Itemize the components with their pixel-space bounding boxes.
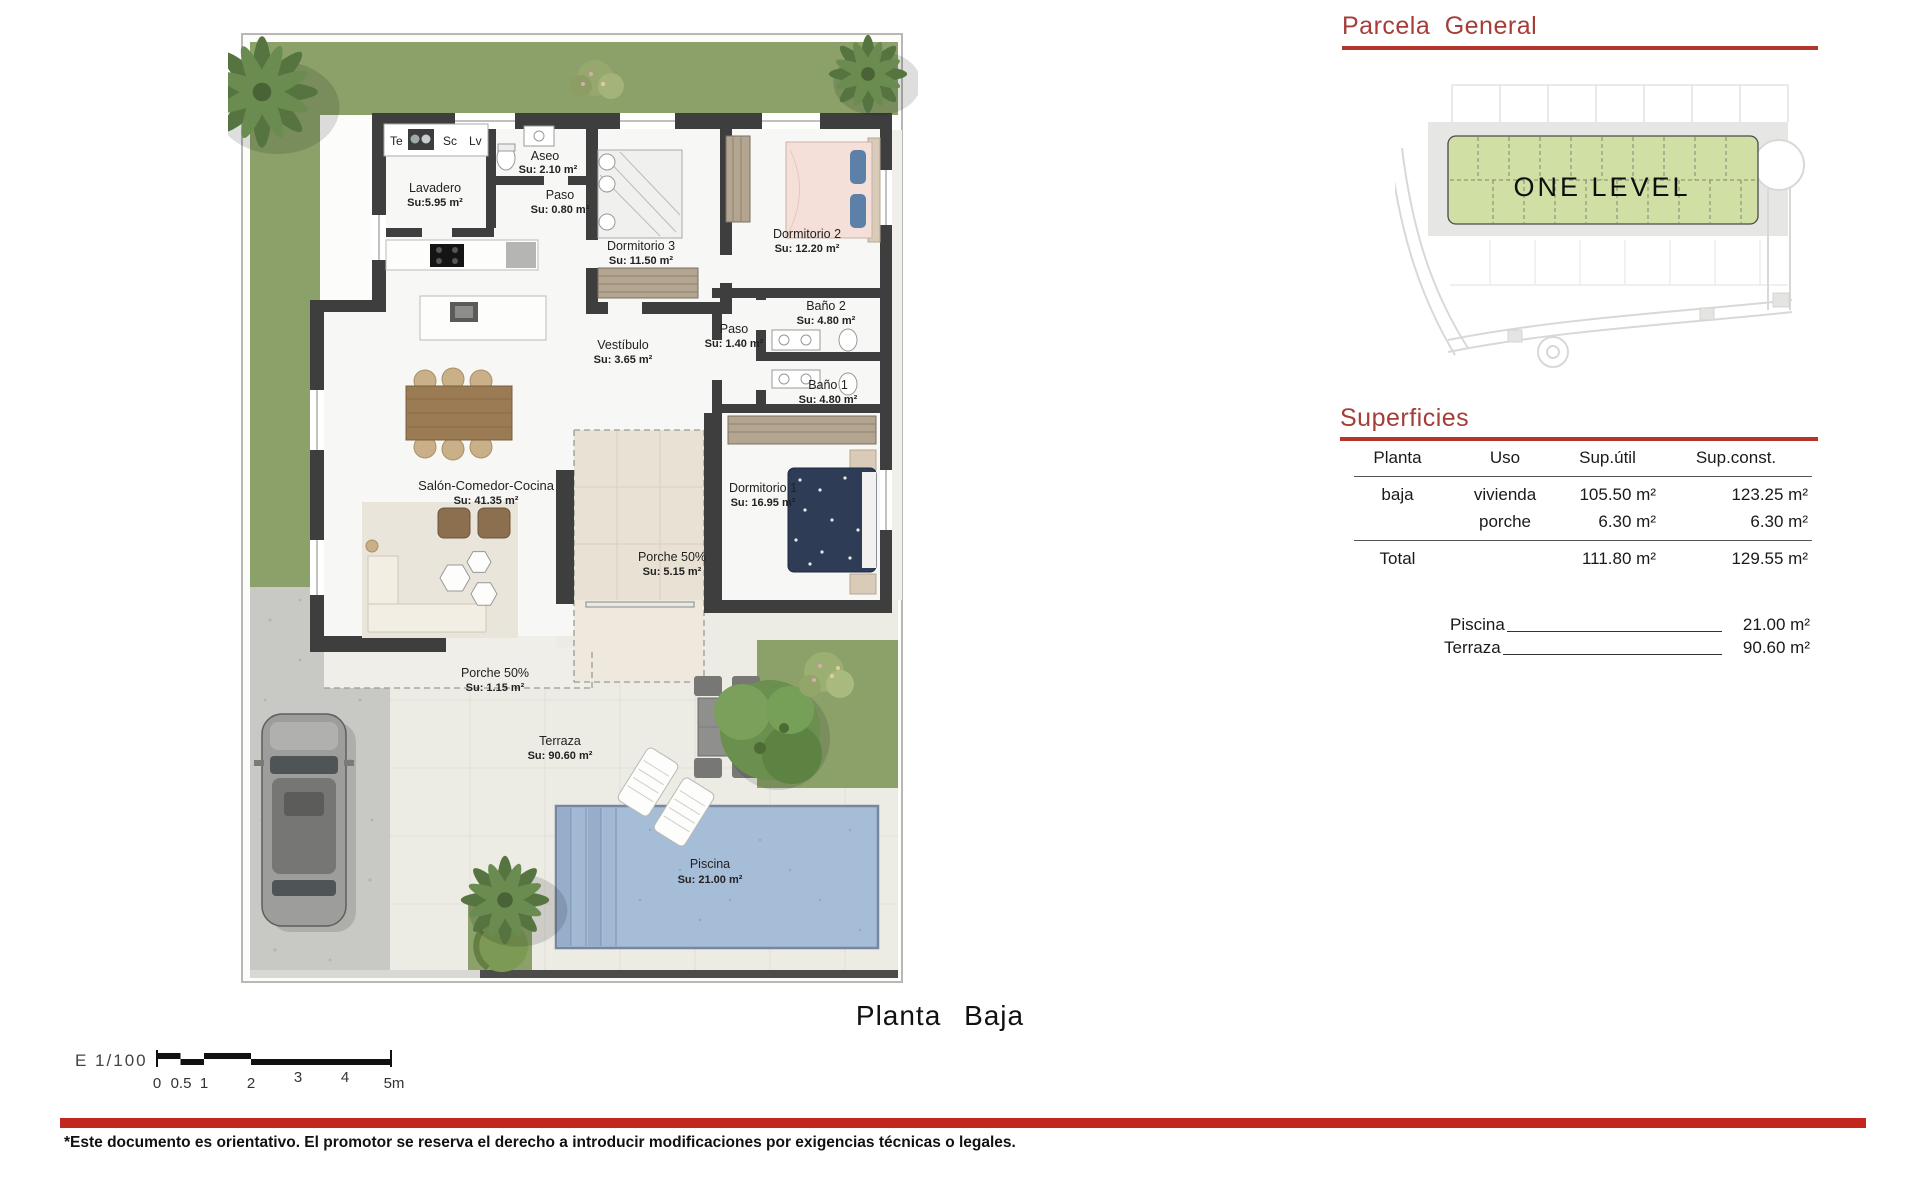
room-label: Paso xyxy=(720,322,749,336)
table-divider xyxy=(1354,540,1812,541)
svg-text:0.5: 0.5 xyxy=(171,1075,192,1092)
room-label: Vestíbulo xyxy=(597,338,648,352)
cell-sup-const: 6.30 m² xyxy=(1660,512,1812,532)
laundry-legend: Te Sc Lv xyxy=(384,124,488,156)
scale-bar-segments xyxy=(156,1050,392,1067)
svg-text:Su: 4.80 m²: Su: 4.80 m² xyxy=(797,315,856,327)
wardrobe xyxy=(598,268,698,298)
svg-text:Su: 90.60 m²: Su: 90.60 m² xyxy=(528,750,593,762)
legend-sc: Sc xyxy=(443,134,457,148)
plan-title: Planta Baja xyxy=(830,1000,1050,1032)
legend-te: Te xyxy=(390,134,403,148)
extra-row-terraza: Terraza 90.60 m² xyxy=(1444,635,1810,658)
svg-text:Su: 2.10 m²: Su: 2.10 m² xyxy=(519,164,578,176)
washer-icon xyxy=(408,129,434,150)
cell-uso: vivienda xyxy=(1455,485,1555,505)
svg-text:Su: 12.20 m²: Su: 12.20 m² xyxy=(775,243,840,255)
svg-text:Su: 21.00 m²: Su: 21.00 m² xyxy=(678,874,743,886)
room-label: Baño 2 xyxy=(806,299,846,313)
col-header-uso: Uso xyxy=(1455,448,1555,468)
car xyxy=(254,714,356,932)
room-label: Terraza xyxy=(539,734,581,748)
superficies-title: Superficies xyxy=(1340,404,1469,433)
extra-value: 21.00 m² xyxy=(1722,615,1810,635)
one-level-label: ONE LEVEL xyxy=(1513,172,1690,202)
room-label: Paso xyxy=(546,188,575,202)
extra-label: Piscina xyxy=(1450,615,1505,635)
svg-text:Su: 3.65 m²: Su: 3.65 m² xyxy=(594,354,653,366)
room-label: Porche 50% xyxy=(638,550,706,564)
cell-sup-const: 123.25 m² xyxy=(1660,485,1812,505)
room-label: Piscina xyxy=(690,857,730,871)
floor-plan: Te Sc Lv xyxy=(228,25,918,990)
cell-uso: porche xyxy=(1455,512,1555,532)
lower-division-lines xyxy=(1450,240,1788,285)
col-header-planta: Planta xyxy=(1340,448,1455,468)
svg-text:Su: 11.50 m²: Su: 11.50 m² xyxy=(609,255,674,267)
svg-text:Su: 1.40 m²: Su: 1.40 m² xyxy=(705,338,764,350)
total-spacer xyxy=(1455,549,1555,569)
legend-lv: Lv xyxy=(469,134,482,148)
svg-text:Su: 0.80 m²: Su: 0.80 m² xyxy=(531,204,590,216)
leader-line xyxy=(1507,631,1722,632)
total-sup-const: 129.55 m² xyxy=(1660,549,1812,569)
table-divider xyxy=(1354,476,1812,477)
room-label: Dormitorio 1 xyxy=(729,481,797,495)
scale-bar: E 1/100 0 0.5 1 2 3 4 5m xyxy=(60,1040,420,1100)
living-set xyxy=(362,502,518,638)
room-label: Aseo xyxy=(531,149,560,163)
scale-ticks: 0 0.5 1 2 3 4 5m xyxy=(153,1069,405,1092)
room-label: Salón-Comedor-Cocina xyxy=(418,478,555,493)
site-map: ONE LEVEL xyxy=(1395,58,1825,398)
svg-text:Su: 41.35 m²: Su: 41.35 m² xyxy=(454,495,519,507)
room-label: Lavadero xyxy=(409,181,461,195)
extra-value: 90.60 m² xyxy=(1722,638,1810,658)
total-label: Total xyxy=(1340,549,1455,569)
svg-text:0: 0 xyxy=(153,1075,161,1092)
bath2-fixtures xyxy=(772,329,857,351)
svg-text:4: 4 xyxy=(341,1069,349,1086)
col-header-sup-const: Sup.const. xyxy=(1660,448,1812,468)
extra-label: Terraza xyxy=(1444,638,1501,658)
superficies-table: Planta Uso Sup.útil Sup.const. baja vivi… xyxy=(1340,448,1812,569)
scale-label: E 1/100 xyxy=(75,1051,148,1070)
svg-text:Su: 5.15 m²: Su: 5.15 m² xyxy=(643,566,702,578)
cell-sup-util: 6.30 m² xyxy=(1555,512,1660,532)
cooktop xyxy=(430,244,464,267)
svg-text:5m: 5m xyxy=(384,1075,405,1092)
kitchen-island xyxy=(420,296,546,340)
extras-list: Piscina 21.00 m² Terraza 90.60 m² xyxy=(1444,612,1810,658)
extra-row-piscina: Piscina 21.00 m² xyxy=(1444,612,1810,635)
cell-sup-util: 105.50 m² xyxy=(1555,485,1660,505)
svg-text:1: 1 xyxy=(200,1075,208,1092)
leader-line xyxy=(1503,654,1722,655)
disclaimer-text: *Este documento es orientativo. El promo… xyxy=(64,1134,1016,1152)
cell-planta: baja xyxy=(1340,485,1455,505)
cell-planta xyxy=(1340,512,1455,532)
plot-division-lines xyxy=(1452,85,1788,122)
room-label: Dormitorio 2 xyxy=(773,227,841,241)
room-label: Baño 1 xyxy=(808,378,848,392)
svg-text:Su: 16.95 m²: Su: 16.95 m² xyxy=(731,497,796,509)
room-label: Porche 50% xyxy=(461,666,529,680)
svg-text:Su:5.95 m²: Su:5.95 m² xyxy=(407,197,463,209)
footer-red-bar xyxy=(60,1118,1866,1128)
col-header-sup-util: Sup.útil xyxy=(1555,448,1660,468)
room-label: Dormitorio 3 xyxy=(607,239,675,253)
one-level-strip: ONE LEVEL xyxy=(1448,136,1758,224)
parcela-title: Parcela General xyxy=(1342,12,1537,41)
svg-text:3: 3 xyxy=(294,1069,302,1086)
total-sup-util: 111.80 m² xyxy=(1555,549,1660,569)
svg-text:Su: 4.80 m²: Su: 4.80 m² xyxy=(799,394,858,406)
parcela-rule xyxy=(1342,46,1818,50)
svg-text:2: 2 xyxy=(247,1075,255,1092)
superficies-rule xyxy=(1340,437,1818,441)
svg-text:Su: 1.15 m²: Su: 1.15 m² xyxy=(466,682,525,694)
plan-sheet: Te Sc Lv xyxy=(0,0,1920,1193)
